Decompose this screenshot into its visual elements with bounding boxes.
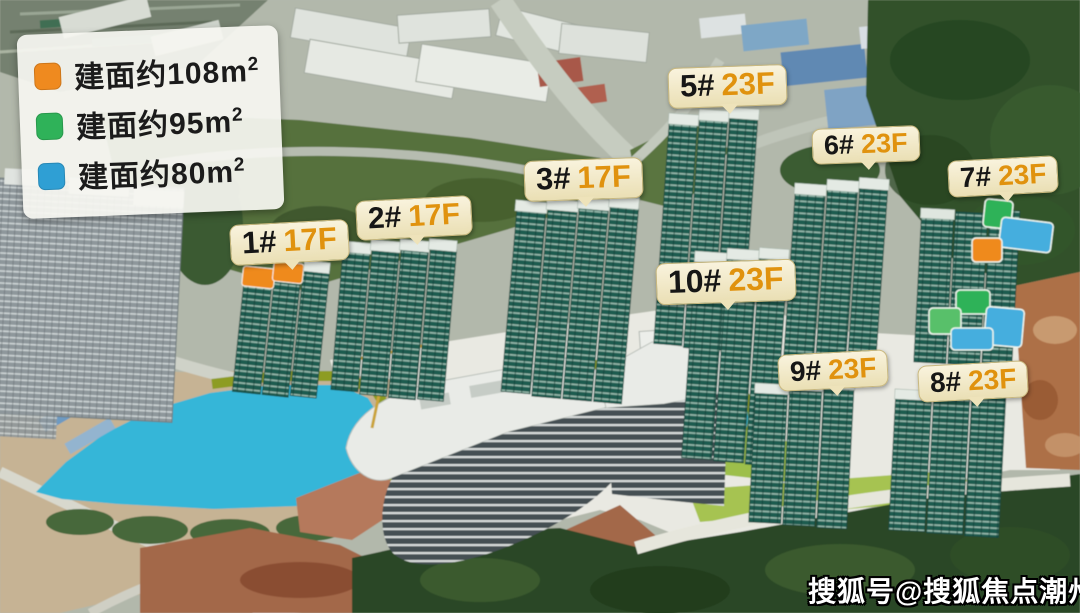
building-label-8: 8#23F: [917, 360, 1029, 403]
building-floors: 17F: [283, 223, 338, 258]
building-number: 6#: [823, 130, 854, 159]
building-floors: 17F: [408, 199, 461, 233]
legend-item-80: 建面约80m2: [37, 146, 264, 199]
building-floors: 23F: [861, 129, 908, 159]
tower-group-3: [499, 188, 639, 404]
building-number: 2#: [367, 202, 402, 235]
building-label-9: 9#23F: [777, 349, 889, 392]
watermark-text: 搜狐号@搜狐焦点潮州站: [808, 570, 1080, 610]
legend-label-95: 建面约95m2: [75, 96, 244, 146]
tower-group-6: [783, 173, 890, 364]
building-number: 3#: [535, 162, 571, 196]
legend-swatch-80-icon: [37, 162, 65, 190]
building-label-10: 10#23F: [655, 259, 796, 305]
building-label-2: 2#17F: [355, 195, 473, 241]
building-floors: 23F: [997, 159, 1047, 191]
building-number: 5#: [679, 69, 715, 103]
legend-item-95: 建面约95m2: [35, 96, 262, 149]
building-floors: 23F: [967, 364, 1017, 396]
legend-label-108: 建面约108m2: [73, 46, 260, 97]
tower-group-1: [230, 254, 330, 400]
building-label-5: 5#23F: [667, 64, 787, 109]
legend-label-80: 建面约80m2: [77, 146, 246, 196]
legend-swatch-108-icon: [34, 62, 62, 90]
building-label-7: 7#23F: [947, 155, 1059, 198]
building-label-6: 6#23F: [811, 125, 920, 165]
building-floors: 23F: [827, 353, 877, 385]
building-number: 1#: [241, 226, 277, 260]
building-floors: 17F: [577, 160, 632, 194]
aerial-site-photo: 建面约108m2 建面约95m2 建面约80m2 1#17F 2#17F 3#1…: [0, 0, 1080, 613]
building-number: 8#: [929, 367, 962, 398]
building-floors: 23F: [721, 67, 776, 101]
legend-swatch-95-icon: [36, 112, 64, 140]
tower-group-2: [329, 231, 458, 402]
legend: 建面约108m2 建面约95m2 建面约80m2: [17, 25, 285, 219]
building-label-3: 3#17F: [523, 157, 643, 202]
building-floors: 23F: [728, 262, 784, 297]
building-number: 10#: [667, 264, 722, 299]
building-number: 9#: [789, 356, 822, 387]
building-number: 7#: [959, 162, 992, 193]
building-label-1: 1#17F: [229, 219, 350, 266]
tower-group-8: [888, 381, 1008, 538]
legend-item-108: 建面约108m2: [33, 46, 260, 99]
